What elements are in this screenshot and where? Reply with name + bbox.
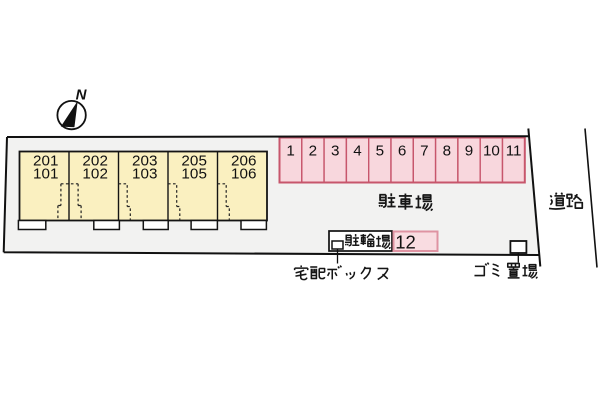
svg-text:103: 103: [132, 166, 158, 183]
svg-text:N: N: [76, 87, 88, 104]
svg-text:105: 105: [181, 166, 207, 183]
svg-text:2: 2: [309, 142, 317, 159]
svg-text:4: 4: [353, 142, 361, 159]
svg-text:106: 106: [231, 166, 257, 183]
svg-text:8: 8: [443, 142, 451, 159]
svg-text:3: 3: [331, 142, 339, 159]
svg-text:12: 12: [395, 232, 416, 253]
svg-text:9: 9: [465, 142, 473, 159]
svg-text:11: 11: [506, 142, 522, 159]
svg-text:101: 101: [33, 166, 59, 183]
svg-text:6: 6: [398, 142, 406, 159]
svg-text:5: 5: [376, 142, 384, 159]
svg-text:1: 1: [286, 142, 294, 159]
svg-text:10: 10: [483, 142, 500, 159]
svg-text:102: 102: [82, 166, 108, 183]
svg-text:7: 7: [420, 142, 428, 159]
